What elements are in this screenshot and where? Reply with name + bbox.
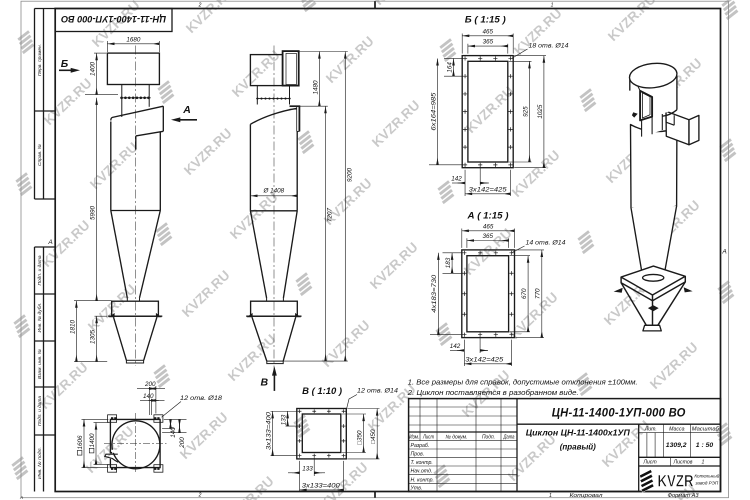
- svg-text:770: 770: [535, 288, 542, 299]
- svg-text:1305: 1305: [90, 330, 97, 345]
- svg-text:1480: 1480: [313, 80, 320, 95]
- svg-text:В: В: [261, 377, 269, 389]
- svg-text:Котельный: Котельный: [694, 473, 719, 479]
- svg-text:1 : 50: 1 : 50: [696, 442, 714, 449]
- svg-text:№ докум.: № докум.: [446, 435, 468, 441]
- svg-text:4х183=730: 4х183=730: [432, 274, 438, 313]
- svg-text:164: 164: [447, 62, 454, 73]
- svg-text:Ø 1408: Ø 1408: [262, 187, 284, 194]
- svg-text:Справ. №: Справ. №: [37, 144, 42, 166]
- svg-text:1: 1: [551, 2, 554, 8]
- svg-text:Взам. инв. №: Взам. инв. №: [37, 349, 42, 379]
- svg-text:Листов: Листов: [673, 460, 693, 466]
- svg-text:465: 465: [482, 28, 493, 35]
- svg-text:1400: 1400: [89, 433, 96, 448]
- svg-text:140: 140: [170, 427, 177, 438]
- svg-text:142: 142: [450, 343, 461, 350]
- svg-text:9200: 9200: [346, 168, 353, 183]
- svg-text:Т. контр.: Т. контр.: [411, 460, 433, 466]
- svg-text:□350: □350: [356, 430, 363, 445]
- svg-text:5990: 5990: [90, 206, 97, 221]
- svg-text:133: 133: [281, 414, 288, 425]
- svg-text:А: А: [721, 249, 726, 256]
- svg-text:12 отв. Ø14: 12 отв. Ø14: [357, 388, 398, 395]
- svg-text:3х142=425: 3х142=425: [469, 187, 508, 193]
- svg-text:□450: □450: [370, 429, 377, 444]
- svg-text:133: 133: [302, 465, 313, 472]
- svg-text:ЦН-11-1400-1УП-000 ВО: ЦН-11-1400-1УП-000 ВО: [61, 13, 167, 24]
- svg-text:KVZR: KVZR: [658, 472, 694, 491]
- svg-text:140: 140: [143, 393, 154, 400]
- svg-text:А: А: [182, 104, 191, 116]
- svg-text:Перв. примен.: Перв. примен.: [37, 44, 42, 76]
- svg-text:142: 142: [451, 176, 462, 183]
- svg-text:Инв. № подл.: Инв. № подл.: [37, 447, 42, 479]
- svg-text:Формат А3: Формат А3: [668, 493, 699, 499]
- svg-text:3х133=400: 3х133=400: [302, 483, 341, 489]
- svg-text:200: 200: [144, 381, 156, 388]
- svg-text:Циклон ЦН-11-1400х1УП: Циклон ЦН-11-1400х1УП: [526, 428, 630, 437]
- svg-text:925: 925: [522, 106, 529, 117]
- svg-text:183: 183: [445, 257, 452, 268]
- svg-text:670: 670: [521, 288, 528, 299]
- svg-text:А: А: [19, 495, 23, 500]
- svg-text:2: 2: [198, 2, 202, 8]
- svg-text:18 отв. Ø14: 18 отв. Ø14: [529, 43, 569, 50]
- svg-text:1: 1: [702, 460, 705, 466]
- svg-text:Инв. № дубл.: Инв. № дубл.: [37, 303, 42, 333]
- svg-text:Н. контр.: Н. контр.: [411, 477, 434, 483]
- svg-text:Масштаб: Масштаб: [692, 427, 720, 433]
- svg-text:А ( 1:15 ): А ( 1:15 ): [466, 211, 508, 221]
- svg-text:Изм.: Изм.: [409, 435, 419, 441]
- svg-text:7207: 7207: [327, 208, 334, 223]
- svg-text:Масса: Масса: [669, 427, 684, 433]
- svg-text:Б ( 1:15 ): Б ( 1:15 ): [465, 15, 506, 25]
- svg-text:Лист: Лист: [642, 460, 657, 466]
- svg-text:Подп.: Подп.: [482, 435, 495, 441]
- svg-text:1025: 1025: [537, 104, 544, 119]
- svg-text:Подп. и дата: Подп. и дата: [37, 255, 42, 285]
- svg-text:ЦН-11-1400-1УП-000 ВО: ЦН-11-1400-1УП-000 ВО: [552, 405, 686, 419]
- svg-text:2. Циклон поставляется в разоб: 2. Циклон поставляется в разобранном вид…: [407, 388, 579, 397]
- svg-text:Пров.: Пров.: [411, 452, 425, 458]
- svg-text:Дата: Дата: [503, 435, 515, 441]
- svg-text:2: 2: [198, 493, 202, 499]
- svg-text:1. Все размеры для справок, до: 1. Все размеры для справок, допустимые о…: [408, 377, 638, 386]
- svg-text:Лит.: Лит.: [644, 427, 657, 433]
- svg-text:465: 465: [483, 223, 494, 230]
- svg-text:1: 1: [549, 493, 552, 499]
- svg-text:1606: 1606: [77, 435, 84, 450]
- svg-text:3х142=425: 3х142=425: [465, 357, 504, 363]
- svg-text:Копировал: Копировал: [570, 493, 603, 499]
- svg-text:14 отв. Ø14: 14 отв. Ø14: [526, 240, 566, 247]
- svg-text:А: А: [47, 239, 52, 246]
- svg-text:3х133=400: 3х133=400: [266, 411, 272, 450]
- svg-text:Нач.отд.: Нач.отд.: [411, 469, 433, 475]
- svg-text:завод РЭП: завод РЭП: [694, 481, 719, 486]
- svg-text:1810: 1810: [70, 320, 77, 335]
- svg-text:365: 365: [482, 233, 493, 240]
- svg-text:Лист: Лист: [422, 435, 434, 441]
- svg-text:6х164=985: 6х164=985: [431, 92, 437, 131]
- svg-text:Подп. и дата: Подп. и дата: [37, 396, 42, 426]
- svg-text:Разраб.: Разраб.: [411, 443, 430, 449]
- svg-text:365: 365: [483, 39, 494, 46]
- svg-text:12 отв. Ø18: 12 отв. Ø18: [180, 395, 222, 402]
- svg-text:(правый): (правый): [560, 442, 596, 451]
- svg-text:Б: Б: [61, 58, 69, 70]
- svg-text:1680: 1680: [126, 37, 141, 44]
- svg-text:200: 200: [179, 437, 186, 449]
- svg-text:Утв.: Утв.: [411, 486, 423, 492]
- svg-text:В ( 1:10 ): В ( 1:10 ): [302, 386, 342, 396]
- svg-text:1309,2: 1309,2: [666, 442, 687, 449]
- svg-text:1400: 1400: [90, 62, 97, 77]
